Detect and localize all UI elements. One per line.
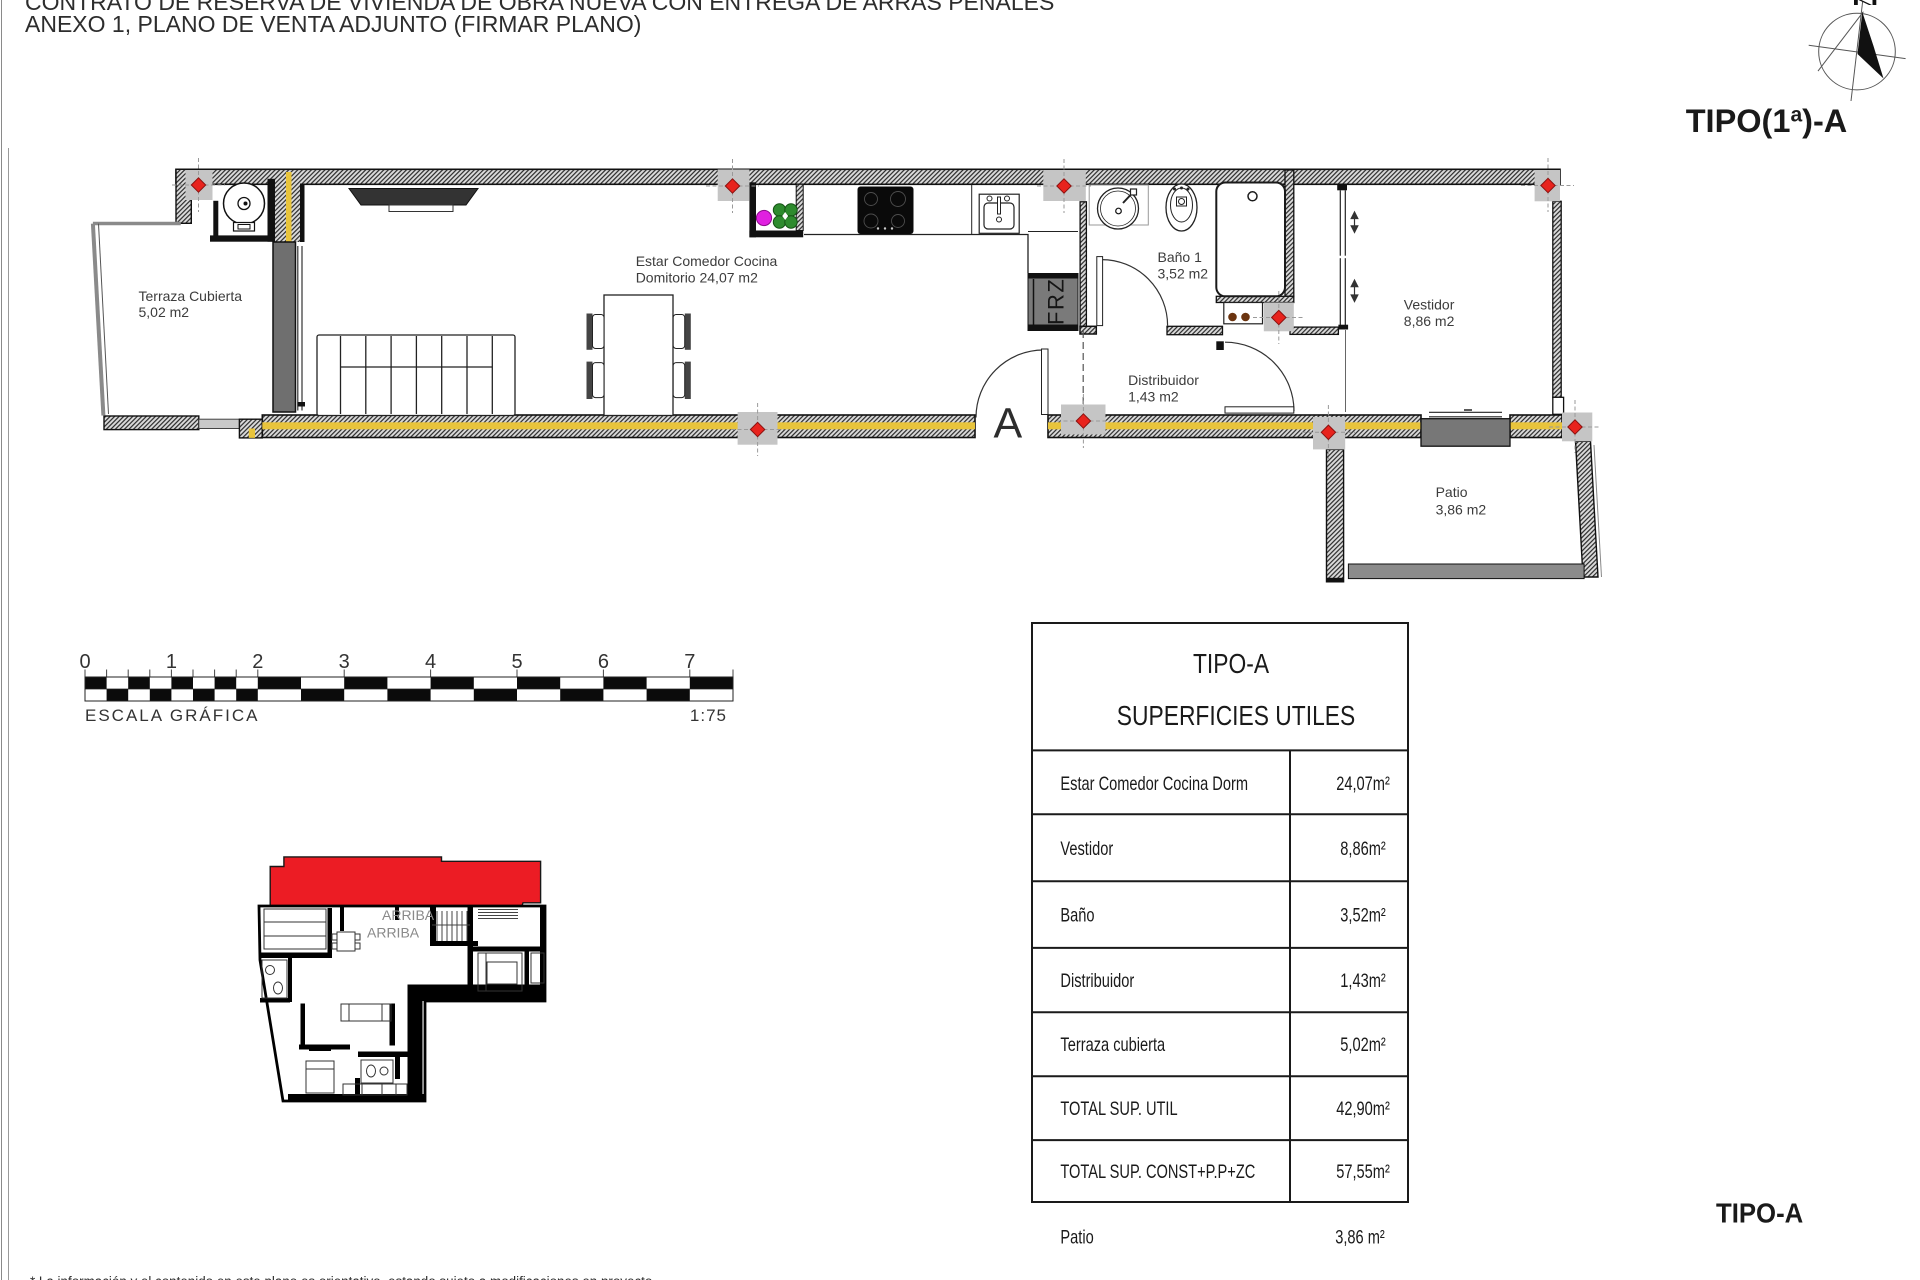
- svg-text:Distribuidor: Distribuidor: [1128, 372, 1199, 388]
- svg-text:Terraza cubierta: Terraza cubierta: [1060, 1034, 1165, 1055]
- svg-text:1,43m²: 1,43m²: [1340, 970, 1386, 991]
- svg-text:1,43 m2: 1,43 m2: [1128, 389, 1179, 405]
- svg-text:1:75: 1:75: [690, 706, 727, 725]
- svg-text:* La información y el contenid: * La información y el contenido en este …: [30, 1274, 652, 1280]
- svg-text:3,86 m²: 3,86 m²: [1335, 1227, 1385, 1248]
- svg-text:A: A: [994, 400, 1023, 448]
- svg-text:3,52m²: 3,52m²: [1340, 905, 1386, 926]
- svg-text:Vestidor: Vestidor: [1060, 838, 1113, 859]
- svg-text:Estar Comedor Cocina Dorm: Estar Comedor Cocina Dorm: [1060, 773, 1248, 794]
- svg-text:3,86 m2: 3,86 m2: [1436, 502, 1487, 518]
- svg-text:Baño: Baño: [1060, 905, 1094, 926]
- svg-text:FRZ: FRZ: [1044, 278, 1069, 325]
- svg-text:24,07m²: 24,07m²: [1336, 773, 1390, 794]
- svg-text:TOTAL SUP. UTIL: TOTAL SUP. UTIL: [1060, 1098, 1177, 1119]
- svg-text:8,86 m2: 8,86 m2: [1404, 313, 1455, 329]
- svg-text:TOTAL SUP. CONST+P.P+ZC: TOTAL SUP. CONST+P.P+ZC: [1060, 1161, 1255, 1182]
- svg-text:Patio: Patio: [1436, 484, 1468, 500]
- svg-text:ARRIBA: ARRIBA: [367, 925, 420, 941]
- svg-text:ESCALA GRÁFICA: ESCALA GRÁFICA: [85, 706, 259, 725]
- svg-text:Estar Comedor Cocina: Estar Comedor Cocina: [636, 253, 778, 269]
- svg-text:57,55m²: 57,55m²: [1336, 1161, 1390, 1182]
- svg-text:Domitorio 24,07 m2: Domitorio 24,07 m2: [636, 270, 758, 286]
- svg-text:ARRIBA: ARRIBA: [382, 907, 435, 923]
- svg-text:42,90m²: 42,90m²: [1336, 1098, 1390, 1119]
- svg-text:TIPO-A: TIPO-A: [1193, 649, 1269, 679]
- svg-text:Terraza Cubierta: Terraza Cubierta: [139, 288, 243, 304]
- svg-text:8,86m²: 8,86m²: [1340, 838, 1386, 859]
- svg-text:ANEXO 1, PLANO DE VENTA ADJUNT: ANEXO 1, PLANO DE VENTA ADJUNTO (FIRMAR …: [25, 11, 641, 37]
- svg-text:5,02 m2: 5,02 m2: [139, 304, 190, 320]
- svg-text:5,02m²: 5,02m²: [1340, 1034, 1386, 1055]
- svg-text:Patio: Patio: [1060, 1227, 1093, 1248]
- svg-text:Baño 1: Baño 1: [1158, 249, 1203, 265]
- svg-text:Vestidor: Vestidor: [1404, 297, 1455, 313]
- svg-text:TIPO(1a)-A: TIPO(1a)-A: [1686, 103, 1848, 139]
- svg-text:SUPERFICIES UTILES: SUPERFICIES UTILES: [1117, 701, 1355, 731]
- svg-text:Distribuidor: Distribuidor: [1060, 970, 1134, 991]
- svg-text:TIPO-A: TIPO-A: [1716, 1198, 1803, 1229]
- svg-text:3,52 m2: 3,52 m2: [1158, 266, 1209, 282]
